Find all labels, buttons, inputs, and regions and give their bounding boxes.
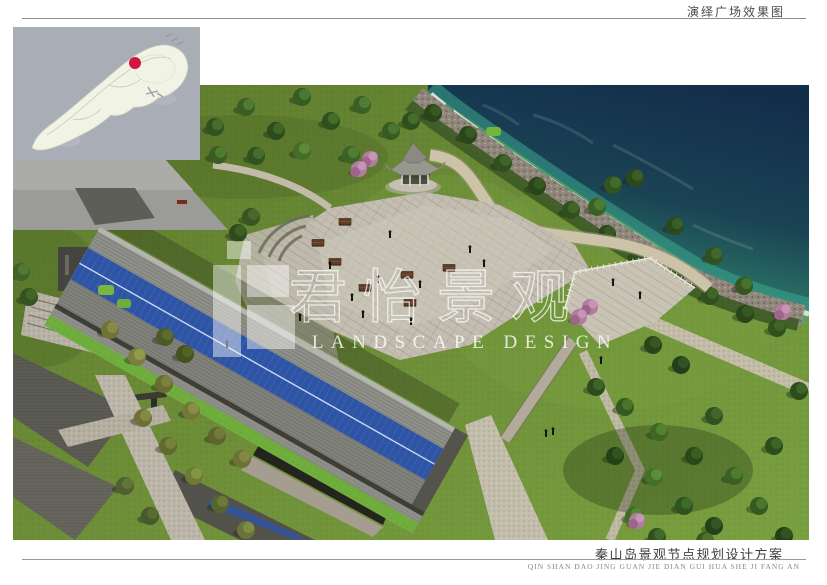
footer-rule: [22, 559, 806, 560]
inset-map: [13, 27, 200, 160]
location-marker-icon: [129, 57, 141, 69]
header-rule: [22, 18, 806, 19]
project-title-pinyin: QIN SHAN DAO JING GUAN JIE DIAN GUI HUA …: [528, 562, 800, 571]
project-title: 秦山岛景观节点规划设计方案: [595, 544, 784, 563]
presentation-board: 演绎广场效果图: [0, 0, 827, 585]
red-banner: [177, 200, 187, 204]
watermark-en: LANDSCAPE DESIGN: [312, 332, 618, 353]
watermark-cn: 君怡景观: [289, 265, 585, 330]
